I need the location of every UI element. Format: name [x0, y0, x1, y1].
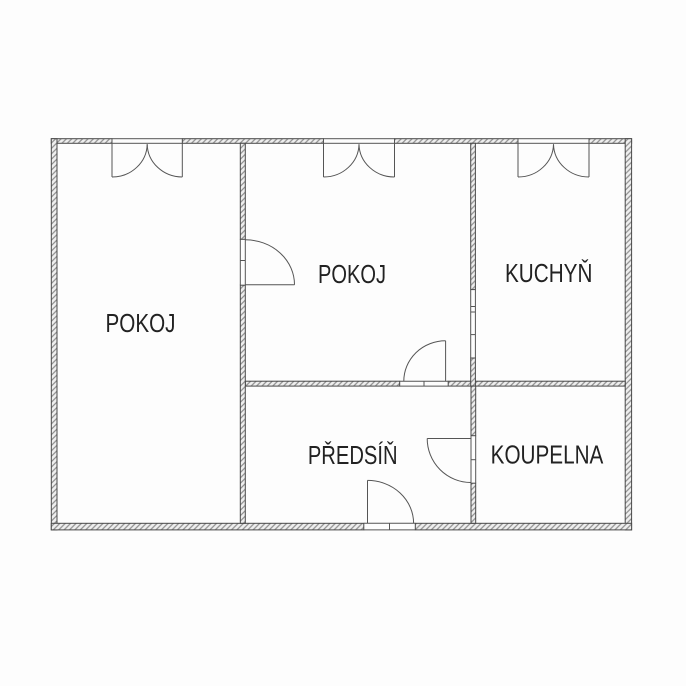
svg-text:POKOJ: POKOJ — [106, 308, 176, 338]
svg-text:KUCHYŇ: KUCHYŇ — [505, 258, 592, 288]
svg-text:POKOJ: POKOJ — [318, 259, 386, 289]
svg-text:KOUPELNA: KOUPELNA — [491, 439, 604, 469]
svg-text:PŘEDSÍŇ: PŘEDSÍŇ — [308, 440, 398, 470]
